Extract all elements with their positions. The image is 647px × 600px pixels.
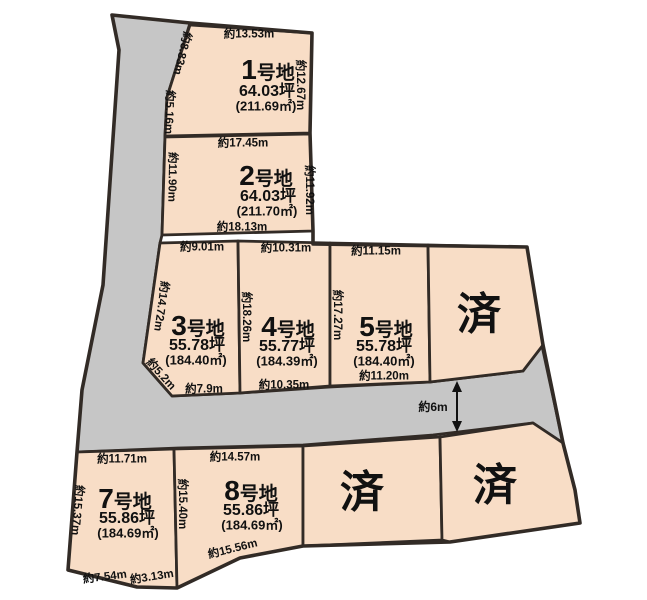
plot-4-edge-top-label: 約10.31m — [261, 243, 312, 255]
plot-2-sqm: (211.70㎡) — [237, 205, 298, 218]
plot-2-edge-bottom-label: 約18.13m — [217, 222, 268, 234]
plot-1-number: 1 — [241, 56, 257, 84]
plot-1-suffix: 号地 — [257, 64, 295, 83]
plot-3-edge-top-label: 約9.01m — [180, 242, 224, 254]
plot-4-sqm: (184.39㎡) — [256, 355, 317, 368]
plot-3-sqm: (184.40㎡) — [165, 354, 226, 367]
plot-5-number: 5 — [359, 313, 375, 341]
plot-3-number: 3 — [171, 312, 187, 340]
plot-3-edge-right-label: 約18.26m — [239, 292, 251, 343]
plot-7-name: 7号地 — [98, 485, 152, 513]
plot-8-edge-top-label: 約14.57m — [210, 452, 261, 464]
plot-2-suffix: 号地 — [255, 170, 293, 189]
plot-5-edge-top-label: 約11.15m — [351, 246, 401, 258]
plot-7-sqm: (184.69㎡) — [97, 527, 158, 540]
plot-7-number: 7 — [98, 485, 114, 513]
plot-8-sqm: (184.69㎡) — [221, 519, 282, 532]
plot-2-edge-right-label: 約11.92m — [302, 165, 314, 215]
plot-4-edge-bottom-label: 約10.35m — [259, 380, 310, 392]
plot-1-sqm: (211.69㎡) — [236, 100, 297, 113]
plot-3-edge-bottom-label: 約7.9m — [185, 384, 223, 396]
plot-1-edge-top-label: 約13.53m — [224, 29, 275, 41]
plot-7-edge-top-label: 約11.71m — [97, 454, 147, 466]
plot-5-edge-left-label: 約17.27m — [330, 290, 342, 341]
parcel-map-svg — [0, 0, 647, 600]
plot-5-name: 5号地 — [359, 313, 413, 341]
plot-4-number: 4 — [261, 313, 277, 341]
plot-1-name: 1号地 — [241, 56, 295, 84]
land-plot-diagram: 約13.53m 約8.83m 約5.16m 約12.67m 1号地 64.03坪… — [0, 0, 647, 600]
sold-mark-bottom-right: 済 — [473, 464, 517, 508]
plot-1-edge-left-lower-label: 約5.16m — [161, 90, 174, 134]
plot-5-sqm: (184.40㎡) — [353, 355, 414, 368]
sold-mark-mid: 済 — [457, 293, 501, 337]
plot-3-name: 3号地 — [171, 312, 225, 340]
plot-8-edge-left-label: 約15.40m — [175, 479, 187, 530]
plot-2-name: 2号地 — [239, 162, 293, 190]
sold-mark-bottom-left: 済 — [340, 471, 384, 515]
plot-5-edge-bottom-label: 約11.20m — [359, 371, 409, 383]
plot-2-edge-left-label: 約11.90m — [165, 152, 177, 202]
plot-8-number: 8 — [224, 477, 240, 505]
plot-2-edge-top-label: 約17.45m — [218, 138, 269, 150]
plot-4-name: 4号地 — [261, 313, 315, 341]
road-width-label: 約6m — [418, 401, 447, 413]
plot-8-name: 8号地 — [224, 477, 278, 505]
plot-2-number: 2 — [239, 162, 255, 190]
